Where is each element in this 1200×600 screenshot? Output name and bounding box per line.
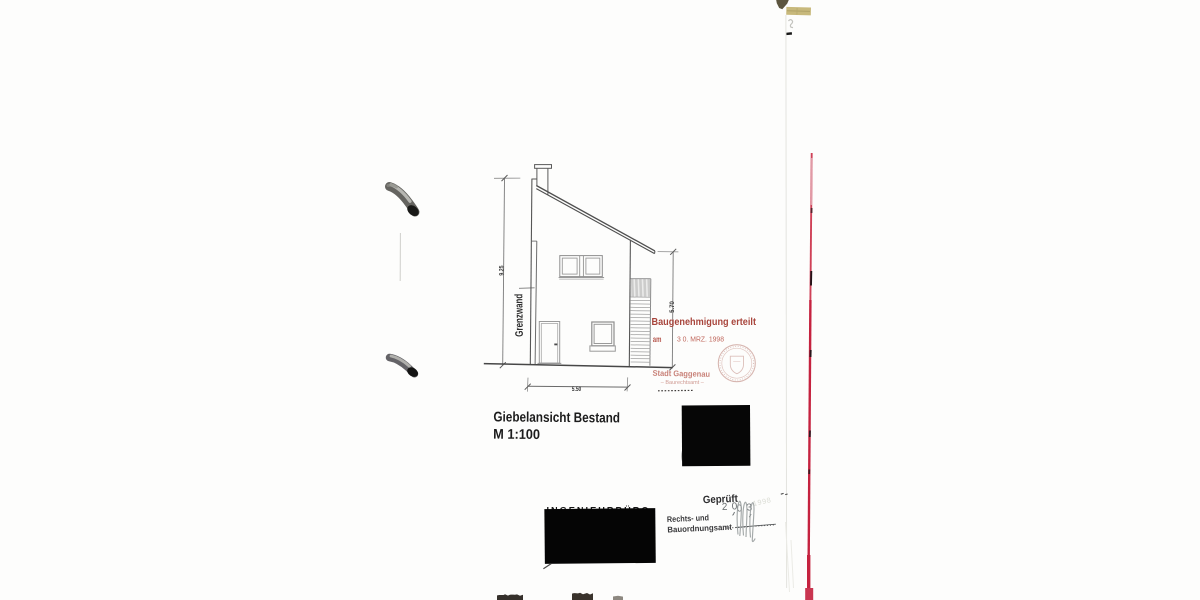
svg-text:am: am <box>653 335 662 344</box>
svg-text:Grenzwand: Grenzwand <box>513 294 526 337</box>
svg-text:5.70: 5.70 <box>670 301 676 313</box>
svg-text:Baugenehmigung erteilt: Baugenehmigung erteilt <box>652 317 757 328</box>
svg-text:9.25: 9.25 <box>499 265 505 276</box>
svg-text:M 1:100: M 1:100 <box>493 426 540 442</box>
svg-text:Giebelansicht Bestand: Giebelansicht Bestand <box>493 408 620 425</box>
svg-text:Rechts- und: Rechts- und <box>667 513 709 524</box>
svg-text:– Baurechtsamt –: – Baurechtsamt – <box>661 380 704 386</box>
svg-text:5.50: 5.50 <box>572 387 582 393</box>
svg-text:3 0. MRZ. 1998: 3 0. MRZ. 1998 <box>677 335 724 344</box>
svg-text:Stadt Gaggenau: Stadt Gaggenau <box>652 369 710 379</box>
